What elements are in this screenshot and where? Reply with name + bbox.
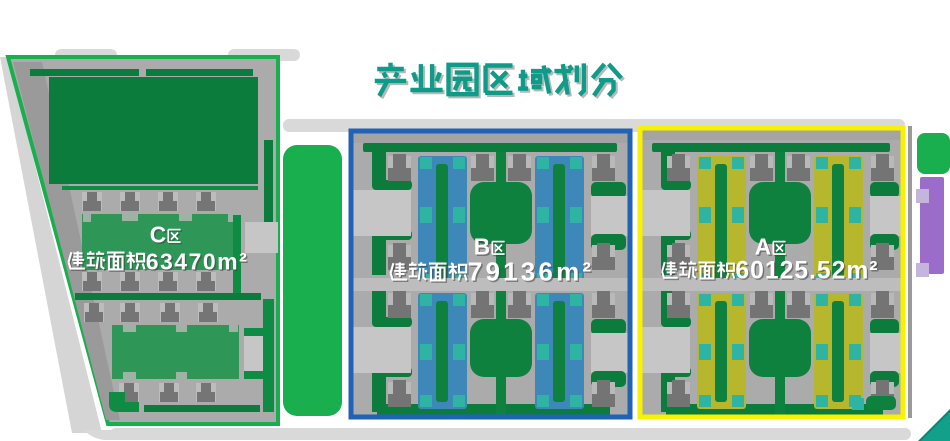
svg-text:A: A: [755, 234, 771, 260]
svg-text:63470m²: 63470m²: [146, 248, 249, 274]
svg-text:60125.52m²: 60125.52m²: [735, 258, 878, 285]
svg-text:C: C: [150, 222, 166, 248]
svg-text:79136m²: 79136m²: [468, 256, 594, 286]
